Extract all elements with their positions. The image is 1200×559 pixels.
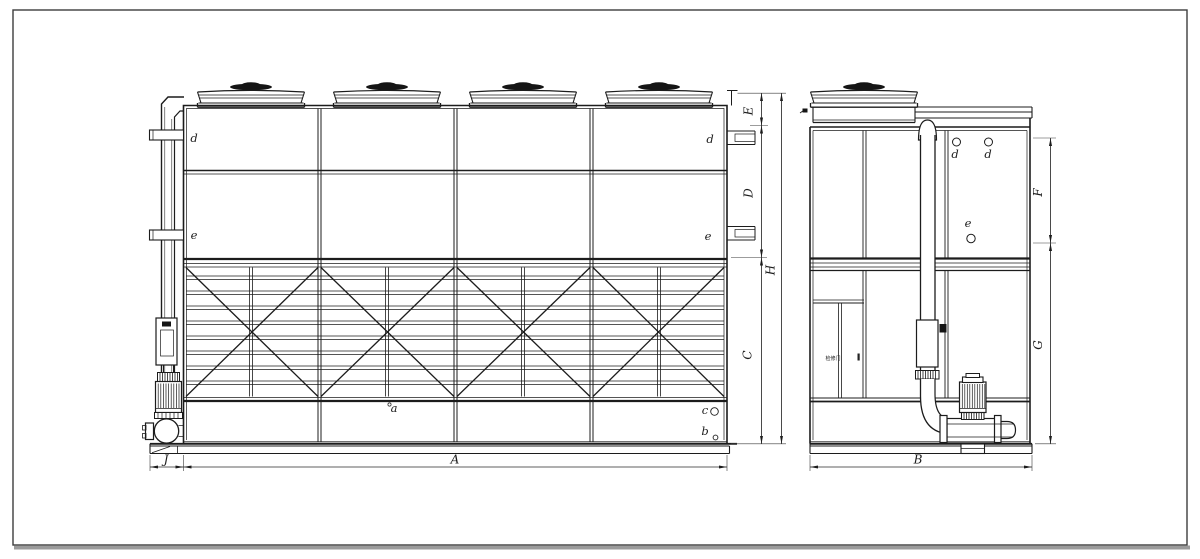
instrument-box xyxy=(156,318,177,365)
door-handle xyxy=(858,354,860,361)
access-door-label: 检修门 xyxy=(825,355,840,362)
part-label-d-right: d xyxy=(706,132,713,146)
side-pipe-coupling xyxy=(916,371,940,380)
pipe-bracket xyxy=(150,230,184,240)
part-label-e-right: e xyxy=(705,229,712,243)
dim-label-A: A xyxy=(450,453,460,467)
pump-casing xyxy=(947,419,995,443)
pipe-bracket xyxy=(150,130,184,140)
pipe-coupling xyxy=(158,373,180,382)
part-label-d-left: d xyxy=(190,131,197,145)
part-label-c: c xyxy=(702,403,709,417)
dim-label-H: H xyxy=(764,264,778,276)
part-label-a: a xyxy=(391,401,398,415)
sheet-shadow xyxy=(14,546,1190,550)
side-pump-motor xyxy=(960,374,987,420)
sensor-box xyxy=(940,324,947,333)
pump-flange-right xyxy=(995,416,1002,443)
pump-motor xyxy=(156,382,182,413)
part-label-d2: d xyxy=(984,147,991,161)
dim-label-G: G xyxy=(1031,340,1045,350)
drawing-border xyxy=(13,10,1187,545)
dim-label-F: F xyxy=(1031,188,1045,198)
part-label-b: b xyxy=(701,424,708,438)
pump-flange-left xyxy=(940,416,947,443)
dim-label-D: D xyxy=(742,188,756,199)
part-label-e: e xyxy=(965,216,972,230)
part-label-d1: d xyxy=(951,147,958,161)
dim-label-C: C xyxy=(741,350,755,359)
dim-label-B: B xyxy=(913,453,923,467)
engineering-drawing: a c b d d e e xyxy=(0,0,1200,559)
part-label-e-left: e xyxy=(191,228,198,242)
dim-label-E: E xyxy=(742,106,756,116)
